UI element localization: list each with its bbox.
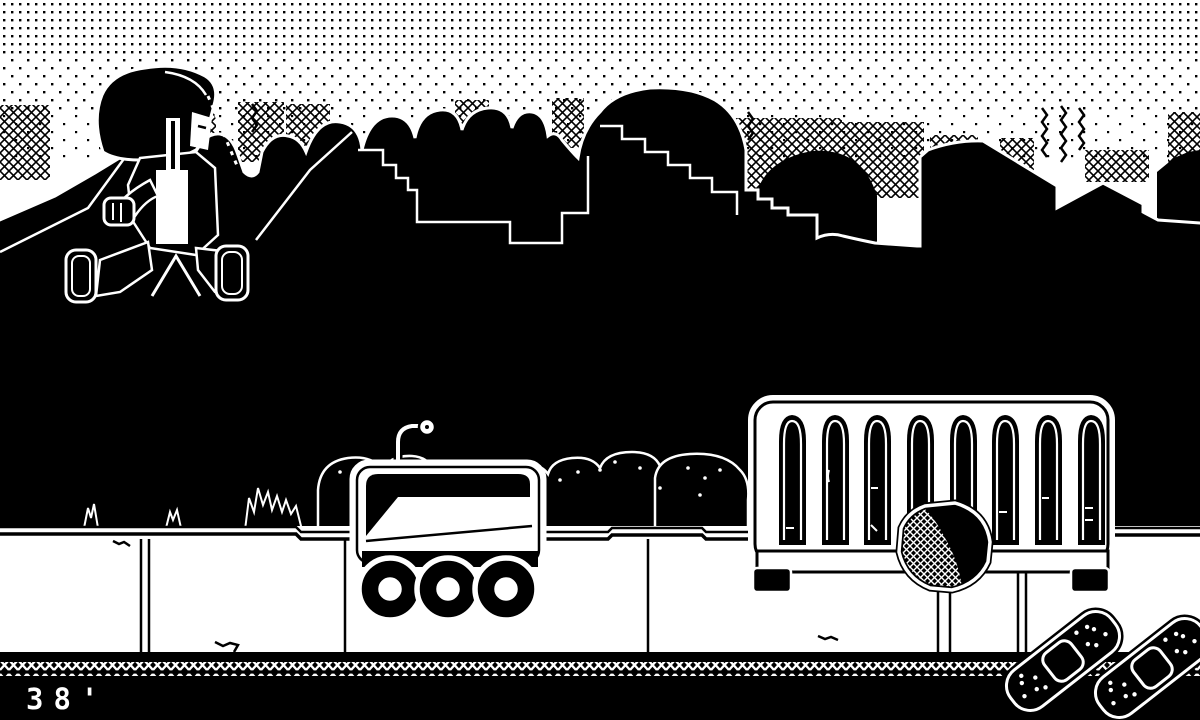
gate-right-foot [1071,568,1109,592]
player-left-shoe [66,250,96,302]
player-right-shoe [216,246,248,300]
player-face [190,112,212,150]
game-scene [0,0,1200,720]
game-screen[interactable]: 38' [0,0,1200,720]
robot-wheels [359,558,537,620]
distance-counter: 38' [26,682,108,716]
sign-post [938,588,950,658]
player-hand [104,198,134,225]
gate-left-foot [753,568,791,592]
